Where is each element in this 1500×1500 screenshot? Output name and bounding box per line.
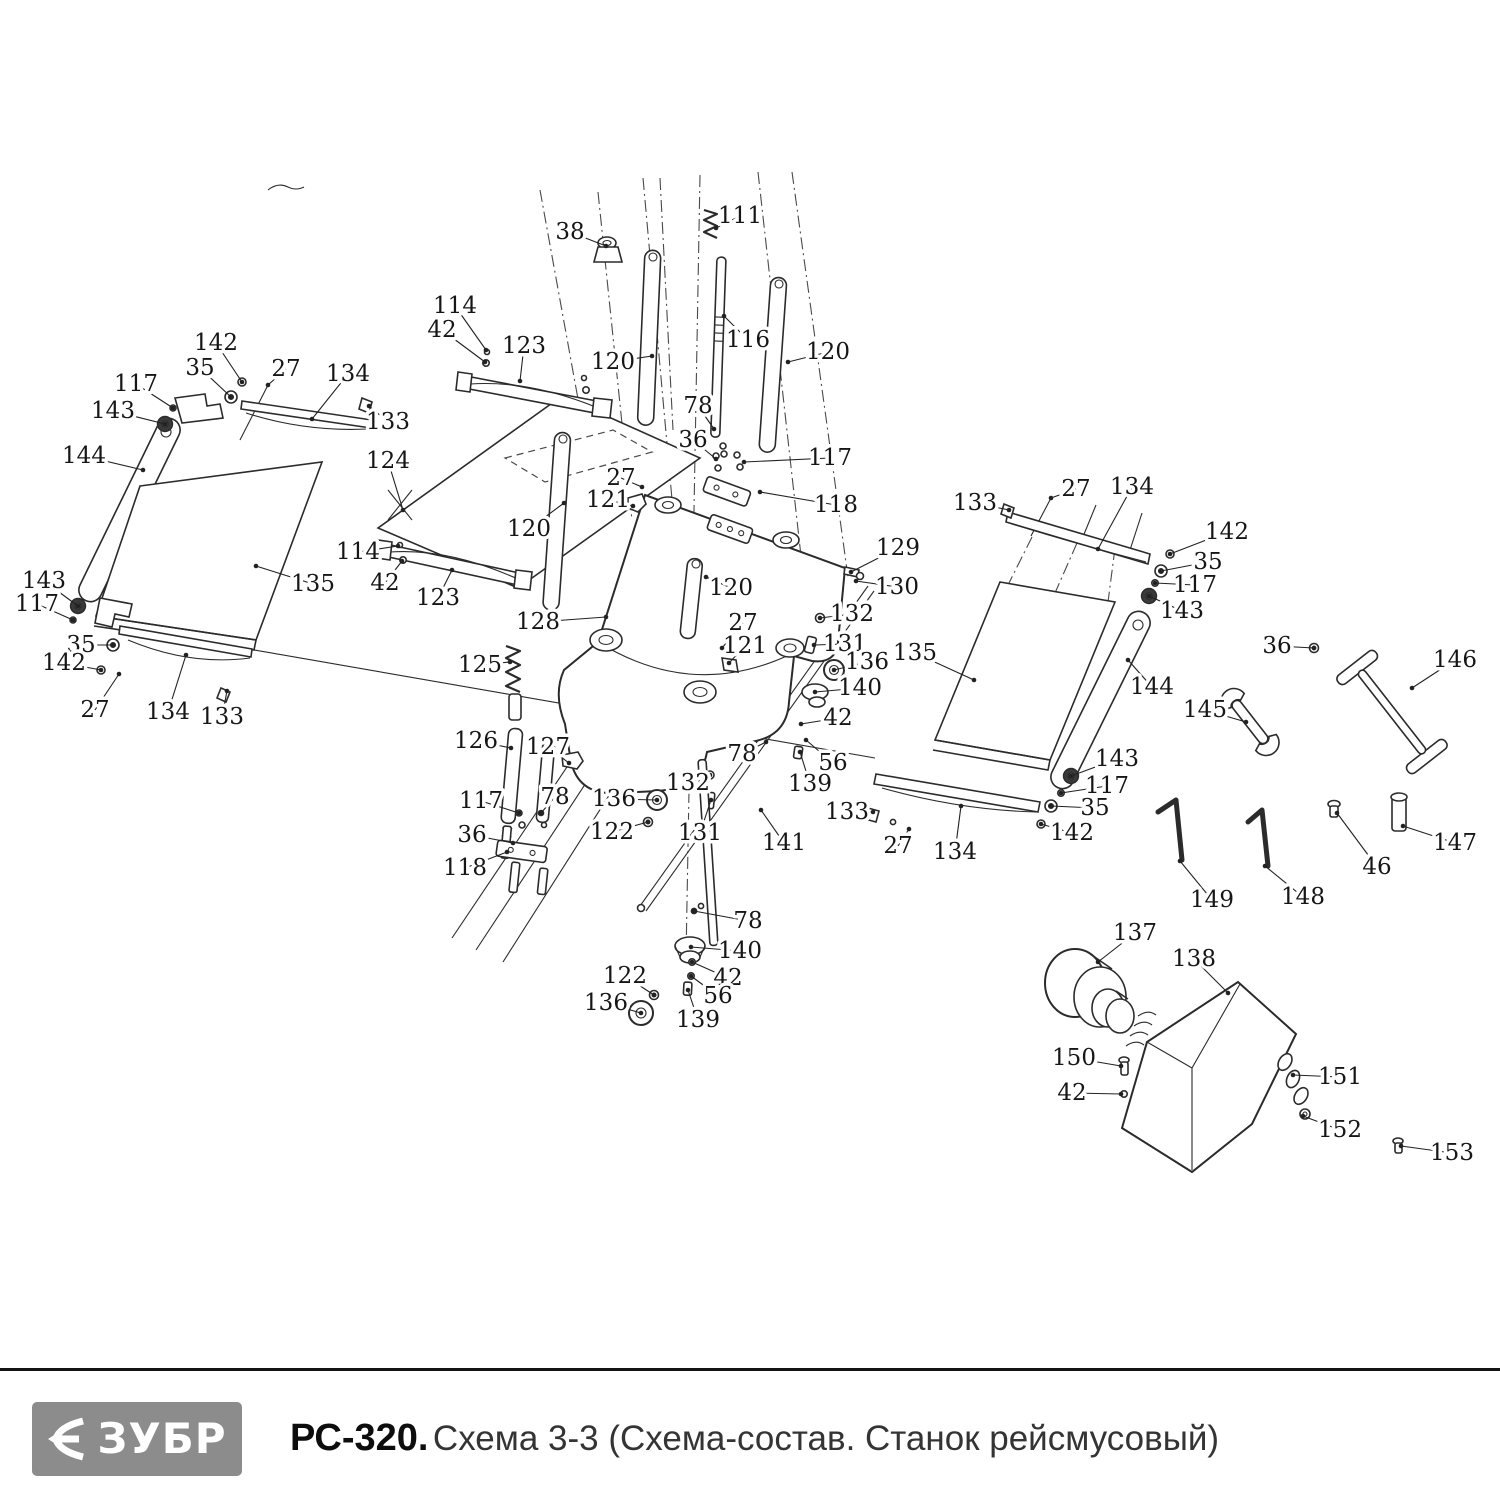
leader-dot-117-10 [742,460,747,465]
callout-46-87: 46 [1362,854,1391,880]
leader-dot-134-32 [184,653,189,658]
leader-dot-42-67 [690,960,695,965]
leader-dot-117-40 [517,811,522,816]
callout-126-37: 126 [454,728,498,754]
dust-cover-138 [1122,982,1296,1172]
leader-dot-139-59 [798,750,803,755]
leader-dot-133-71 [1007,508,1012,513]
callout-136-41: 136 [592,786,636,812]
callout-56-68: 56 [703,983,732,1009]
callout-42-93: 42 [1057,1080,1086,1106]
leader-dot-145-81 [1244,720,1249,725]
leader-dot-78-39 [539,811,544,816]
leader-dot-123-4 [518,379,523,384]
leader-dot-133-60 [871,810,876,815]
exploded-parts-diagram: 3811111442123120116120783611727121118142… [0,0,1500,1368]
callout-153-96: 153 [1430,1140,1474,1166]
leader-dot-144-21 [141,468,146,473]
service-tools [1158,644,1449,867]
leader-dot-121-51 [727,661,732,666]
callout-78-64: 78 [733,908,762,934]
leader-dot-134-17 [310,417,315,422]
leader-dot-120-5 [650,354,655,359]
callout-137-90: 137 [1113,920,1157,946]
callout-133-60: 133 [825,799,869,825]
callout-36-9: 36 [678,427,707,453]
callout-42-24: 42 [370,570,399,596]
leader-dot-141-61 [759,808,764,813]
leader-dot-139-70 [686,988,691,993]
leader-dot-150-92 [1119,1064,1124,1069]
callout-117-18: 117 [114,371,158,397]
schema-title: Схема 3-3 (Схема-состав. Станок рейсмусо… [433,1419,1219,1458]
leader-dot-131-45 [709,798,714,803]
callout-147-86: 147 [1433,830,1477,856]
callout-138-91: 138 [1172,946,1216,972]
callout-143-77: 143 [1160,598,1204,624]
column-120c [759,277,787,453]
leader-dot-144-80 [1126,658,1131,663]
callout-117-10: 117 [808,445,852,471]
callout-42-3: 42 [427,317,456,343]
leader-dot-42-56 [799,722,804,727]
callout-78-39: 78 [540,784,569,810]
callout-141-61: 141 [762,830,806,856]
leader-dot-27-11 [640,485,645,490]
leader-dot-142-85 [1039,822,1044,827]
leader-dot-114-2 [484,348,489,353]
leader-dot-35-15 [229,395,234,400]
callout-134-63: 134 [933,839,977,865]
leader-dot-78-57 [764,740,769,745]
top-plate-118 [703,476,752,507]
callout-133-71: 133 [953,490,997,516]
bottom-plate-118 [496,840,548,863]
callout-151-94: 151 [1318,1064,1362,1090]
spring-125 [506,646,520,692]
leader-dot-128-35 [604,615,609,620]
leader-dot-27-62 [907,827,912,832]
leader-dot-142-14 [240,380,245,385]
callout-149-89: 149 [1190,887,1234,913]
leader-dot-131-52 [812,643,817,648]
leader-dot-140-55 [813,690,818,695]
leader-dot-117-18 [171,406,176,411]
callout-36-42: 36 [457,822,486,848]
callout-36-78: 36 [1262,633,1291,659]
leader-dot-138-91 [1226,991,1231,996]
leader-dot-136-69 [639,1011,644,1016]
callout-142-30: 142 [42,650,86,676]
callout-150-92: 150 [1052,1045,1096,1071]
leader-dot-142-30 [99,668,104,673]
leader-dot-120-34 [562,501,567,506]
callout-78-57: 78 [727,741,756,767]
callout-134-32: 134 [146,699,190,725]
upper-bar-123 [464,376,602,414]
leader-dot-134-73 [1096,547,1101,552]
leader-dot-27-72 [1049,496,1054,501]
callout-148-88: 148 [1281,884,1325,910]
leader-dot-135-26 [254,564,259,569]
leader-dot-142-74 [1168,552,1173,557]
brand-logo: ЗУБР [32,1402,242,1476]
leader-dot-78-8 [712,427,717,432]
leader-dot-36-42 [511,841,516,846]
callout-123-4: 123 [502,333,546,359]
callout-122-43: 122 [590,819,634,845]
leader-dot-120-7 [786,360,791,365]
leader-dot-78-64 [692,909,697,914]
leader-dot-56-58 [804,738,809,743]
leader-dot-27-31 [117,672,122,677]
brand-name: ЗУБР [97,1418,226,1460]
leader-dot-42-93 [1119,1092,1124,1097]
callout-139-59: 139 [788,771,832,797]
callout-35-84: 35 [1080,795,1109,821]
leader-dot-123-25 [450,568,455,573]
leader-dot-132-49 [818,616,823,621]
leader-dot-126-37 [509,746,514,751]
callout-142-14: 142 [194,330,238,356]
leader-dot-130-48 [854,579,859,584]
callout-120-34: 120 [507,516,551,542]
leader-dot-122-66 [652,993,657,998]
callout-131-45: 131 [678,820,722,846]
leader-dot-117-76 [1153,581,1158,586]
leader-dot-143-19 [163,422,168,427]
callout-142-85: 142 [1050,820,1094,846]
callout-123-25: 123 [416,585,460,611]
callout-42-56: 42 [823,705,852,731]
leader-dot-27-16 [266,383,271,388]
leader-dot-143-77 [1147,594,1152,599]
leader-dot-122-43 [646,820,651,825]
column-120a [637,250,661,426]
callout-27-16: 27 [271,356,300,382]
callout-125-36: 125 [458,652,502,678]
callout-117-40: 117 [459,788,503,814]
callout-136-69: 136 [584,990,628,1016]
callout-143-82: 143 [1095,746,1139,772]
lead-screw-116 [711,257,726,437]
spring-111 [704,210,717,238]
callout-140-65: 140 [718,938,762,964]
callout-120-97: 120 [709,575,753,601]
callout-128-35: 128 [516,609,560,635]
leader-dot-129-47 [849,570,854,575]
callout-140-55: 140 [838,675,882,701]
callout-114-23: 114 [336,539,380,565]
callout-146-79: 146 [1433,647,1477,673]
leader-dot-116-6 [722,314,727,319]
callout-124-22: 124 [366,448,410,474]
callout-27-72: 27 [1061,476,1090,502]
callout-120-7: 120 [806,339,850,365]
leader-dot-124-22 [401,508,406,513]
leader-dot-134-63 [959,804,964,809]
leader-dot-118-46 [505,850,510,855]
callout-143-19: 143 [91,398,135,424]
leader-dot-121-12 [631,504,636,509]
callout-111-1: 111 [718,203,762,229]
leader-dot-136-53 [832,668,837,673]
leader-dot-133-20 [367,404,372,409]
callout-38-0: 38 [555,219,584,245]
callout-152-95: 152 [1318,1117,1362,1143]
callout-118-46: 118 [443,855,487,881]
callout-27-62: 27 [883,833,912,859]
leader-dot-147-86 [1401,824,1406,829]
leader-dot-143-82 [1069,774,1074,779]
leader-dot-117-28 [71,618,76,623]
callout-139-70: 139 [676,1007,720,1033]
callout-130-48: 130 [875,574,919,600]
leader-dot-38-0 [604,244,609,249]
leader-dot-135-54 [972,678,977,683]
callout-120-5: 120 [591,349,635,375]
callout-35-15: 35 [185,355,214,381]
callout-121-12: 121 [586,487,630,513]
leader-dot-46-87 [1335,811,1340,816]
leader-dot-143-27 [76,604,81,609]
leader-dot-140-65 [689,945,694,950]
leader-dot-117-83 [1059,791,1064,796]
leader-dot-137-90 [1096,960,1101,965]
leader-dot-153-96 [1399,1144,1404,1149]
page: 3811111442123120116120783611727121118142… [0,0,1500,1500]
callout-136-53: 136 [845,649,889,675]
leader-dot-136-41 [655,798,660,803]
leader-dot-133-33 [225,689,230,694]
leader-dot-127-38 [567,761,572,766]
callout-129-47: 129 [876,535,920,561]
leader-dot-146-79 [1410,686,1415,691]
callout-134-17: 134 [326,361,370,387]
callout-133-33: 133 [200,704,244,730]
leader-dot-118-13 [758,490,763,495]
callout-27-31: 27 [80,697,109,723]
callout-121-51: 121 [723,633,767,659]
drawing-caption: РС-320. Схема 3-3 (Схема-состав. Станок … [290,1417,1219,1460]
leader-dot-36-9 [714,457,719,462]
zubr-arrow-icon [47,1416,89,1462]
callout-142-74: 142 [1205,519,1249,545]
callout-134-73: 134 [1110,474,1154,500]
footer-bar: ЗУБР РС-320. Схема 3-3 (Схема-состав. Ст… [0,1368,1500,1500]
left-table-assembly [70,378,372,702]
leader-dot-35-29 [111,643,116,648]
leader-dot-42-24 [400,559,405,564]
callout-114-2: 114 [433,293,477,319]
callout-78-8: 78 [683,393,712,419]
leader-dot-36-78 [1312,646,1317,651]
callout-132-49: 132 [830,601,874,627]
callout-116-6: 116 [726,327,770,353]
callout-132-44: 132 [666,770,710,796]
callout-145-81: 145 [1183,697,1227,723]
leader-dot-114-23 [396,544,401,549]
leader-dot-35-75 [1159,569,1164,574]
callout-117-28: 117 [15,591,59,617]
leader-dot-42-3 [483,360,488,365]
callout-118-13: 118 [814,492,858,518]
callout-117-76: 117 [1173,572,1217,598]
callout-144-21: 144 [62,443,106,469]
right-upper-clamp-bar [1006,512,1150,564]
leader-dot-35-84 [1049,804,1054,809]
callout-122-66: 122 [603,963,647,989]
leader-dot-148-88 [1263,864,1268,869]
callout-144-80: 144 [1130,674,1174,700]
left-upper-clamp-bar [241,401,372,428]
callout-127-38: 127 [526,734,570,760]
leader-dot-56-68 [689,974,694,979]
callout-135-54: 135 [893,640,937,666]
hex-key-148 [1248,810,1268,866]
hex-key-149 [1158,800,1182,860]
leader-dot-151-94 [1291,1073,1296,1078]
handle-146 [1335,648,1449,775]
leader-dot-120-97 [704,575,709,580]
callout-133-20: 133 [366,409,410,435]
leader-dot-152-95 [1301,1114,1306,1119]
leader-dot-125-36 [508,660,513,665]
model-number: РС-320. [290,1417,428,1459]
leader-dot-149-89 [1178,859,1183,864]
callout-135-26: 135 [291,571,335,597]
